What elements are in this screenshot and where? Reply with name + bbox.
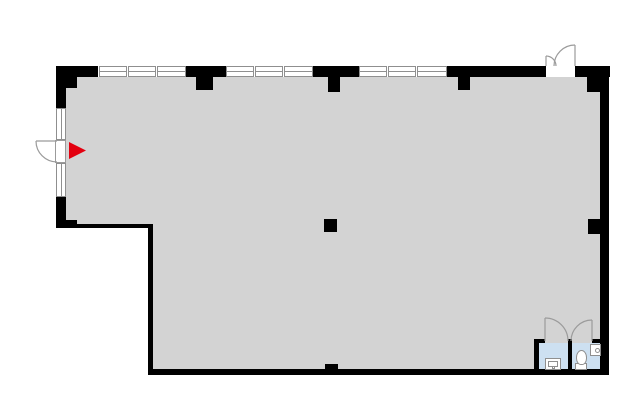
north-wall-ne-corner (575, 66, 610, 77)
free-standing-column (324, 219, 337, 232)
toilet-bowl (576, 350, 587, 365)
north-pilaster-1-stub (196, 77, 213, 90)
north-pilaster-1 (186, 66, 226, 77)
north-window-bay2-pane3 (284, 66, 313, 77)
north-wall-corner-nw (56, 66, 98, 77)
north-pilaster-2 (313, 66, 359, 77)
west-window-lower (56, 163, 66, 197)
north-pilaster-2-stub (328, 77, 340, 92)
entrance-door-arc (36, 141, 57, 162)
north-wall-east-stub (458, 77, 470, 90)
west-wall-lower (56, 197, 66, 228)
east-pilaster (588, 219, 600, 234)
north-window-bay2-pane1 (226, 66, 254, 77)
floor-plan (0, 0, 643, 405)
north-wall-east-run (447, 66, 546, 77)
north-window-bay3-pane1 (359, 66, 387, 77)
ne-door-large-arc (554, 45, 575, 66)
restroom-north-wall-east-block (592, 339, 600, 343)
east-wall (600, 77, 609, 375)
south-pilaster (325, 364, 338, 369)
north-window-bay1-pane3 (157, 66, 186, 77)
west-wall-upper (56, 88, 66, 108)
north-window-bay1-pane2 (128, 66, 156, 77)
main-hall-floor-lower (153, 224, 600, 369)
restroom-partition-wall (568, 339, 572, 375)
notch-west-wall (148, 224, 153, 375)
sw-wing-corner-step (66, 220, 77, 228)
restroom-north-wall-west-block (534, 339, 545, 343)
sink (545, 358, 561, 370)
restroom-west-wall (534, 339, 539, 375)
north-window-bay3-pane3 (417, 66, 447, 77)
west-window-upper (56, 108, 66, 140)
ne-corner-step (587, 77, 600, 92)
main-hall-floor-upper (66, 77, 600, 224)
hand-basin-bowl (595, 348, 600, 353)
north-window-bay3-pane2 (388, 66, 416, 77)
entrance-door-panel (55, 140, 66, 163)
north-window-bay1-pane1 (99, 66, 127, 77)
sink-faucet (552, 366, 555, 369)
north-wall-corner-nw-step (56, 77, 77, 88)
north-window-bay2-pane2 (255, 66, 283, 77)
wing-south-wall (77, 224, 152, 228)
ne-door-small-arc (546, 56, 556, 66)
hand-basin (590, 344, 601, 356)
south-wall (148, 369, 609, 375)
